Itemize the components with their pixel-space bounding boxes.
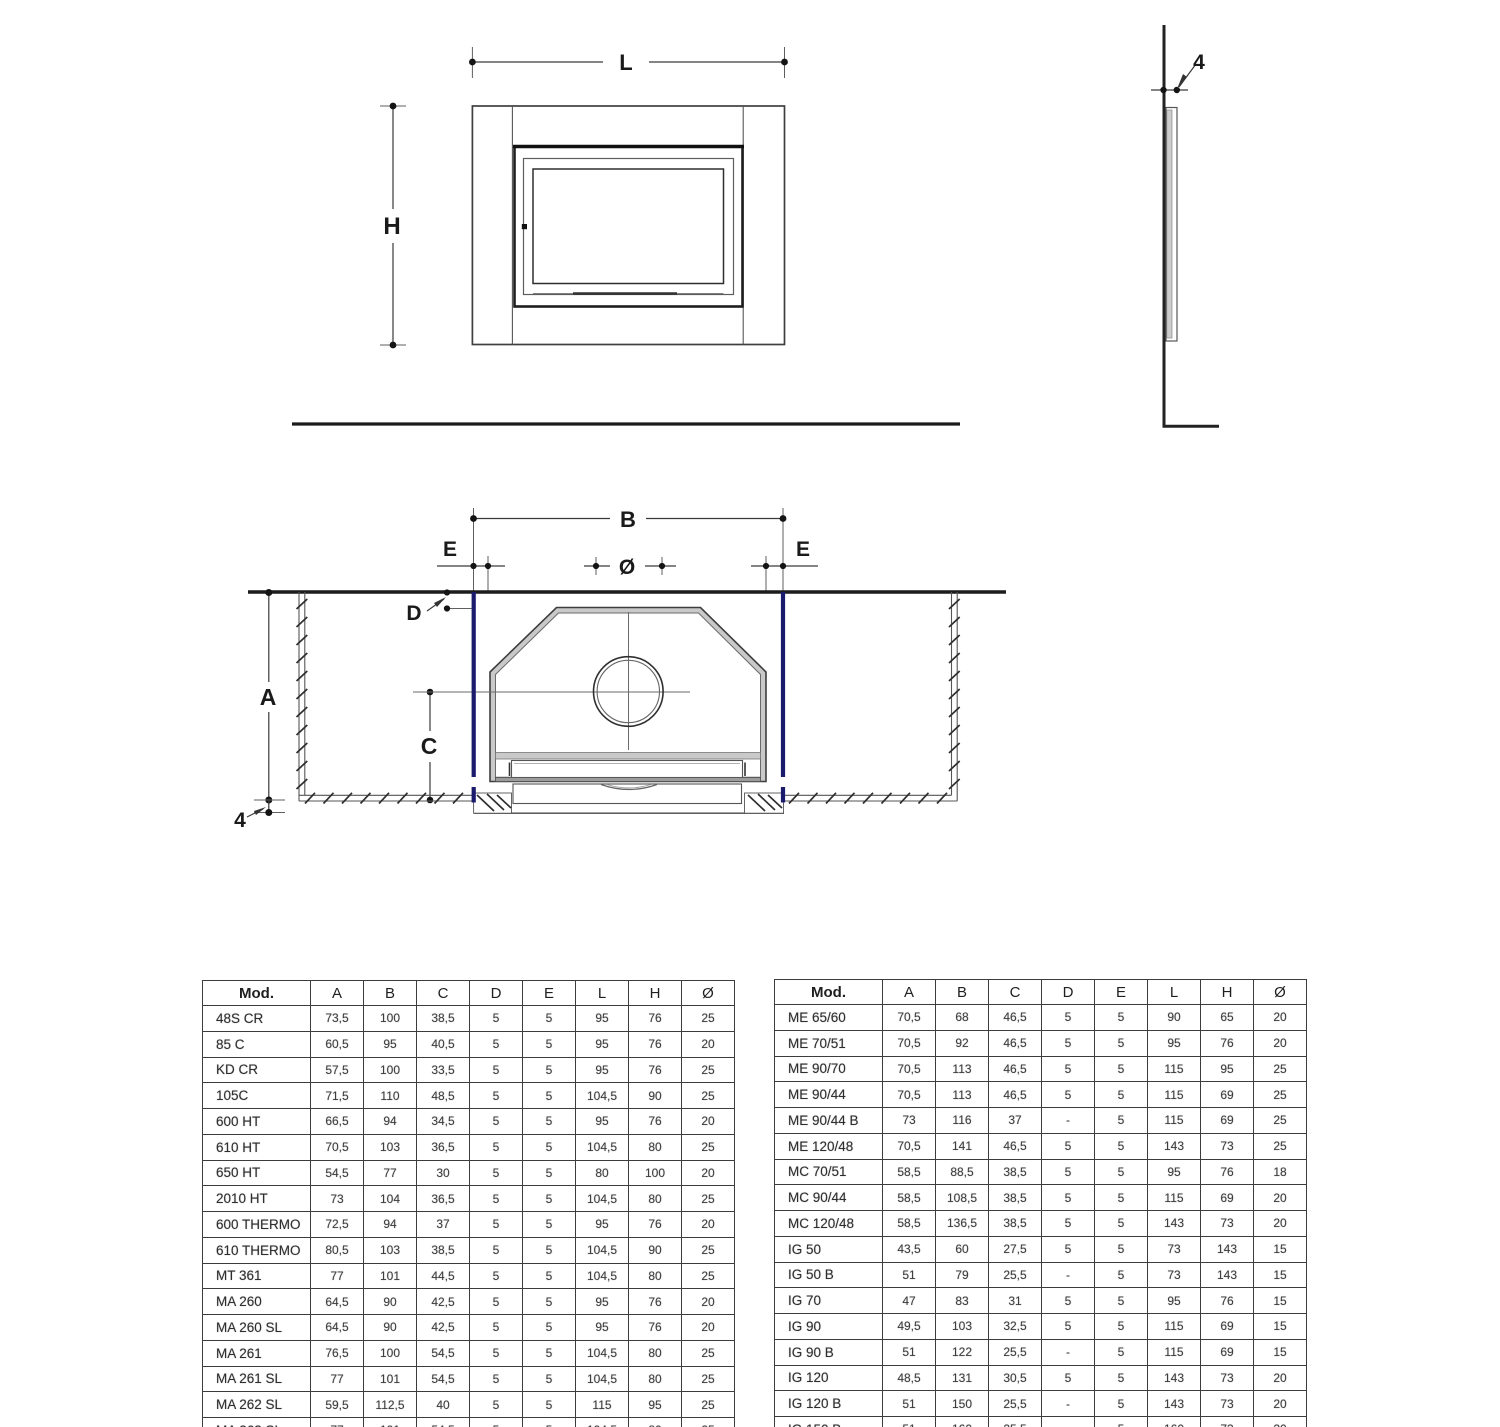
svg-text:C: C (421, 733, 438, 759)
svg-text:E: E (443, 538, 457, 561)
svg-text:4: 4 (1193, 51, 1205, 74)
svg-text:B: B (620, 507, 636, 532)
svg-text:Ø: Ø (619, 556, 635, 579)
svg-text:D: D (406, 602, 421, 625)
svg-text:H: H (383, 213, 400, 240)
svg-text:E: E (796, 538, 810, 561)
svg-text:4: 4 (234, 809, 246, 832)
svg-text:A: A (260, 684, 277, 710)
svg-text:L: L (619, 50, 632, 75)
